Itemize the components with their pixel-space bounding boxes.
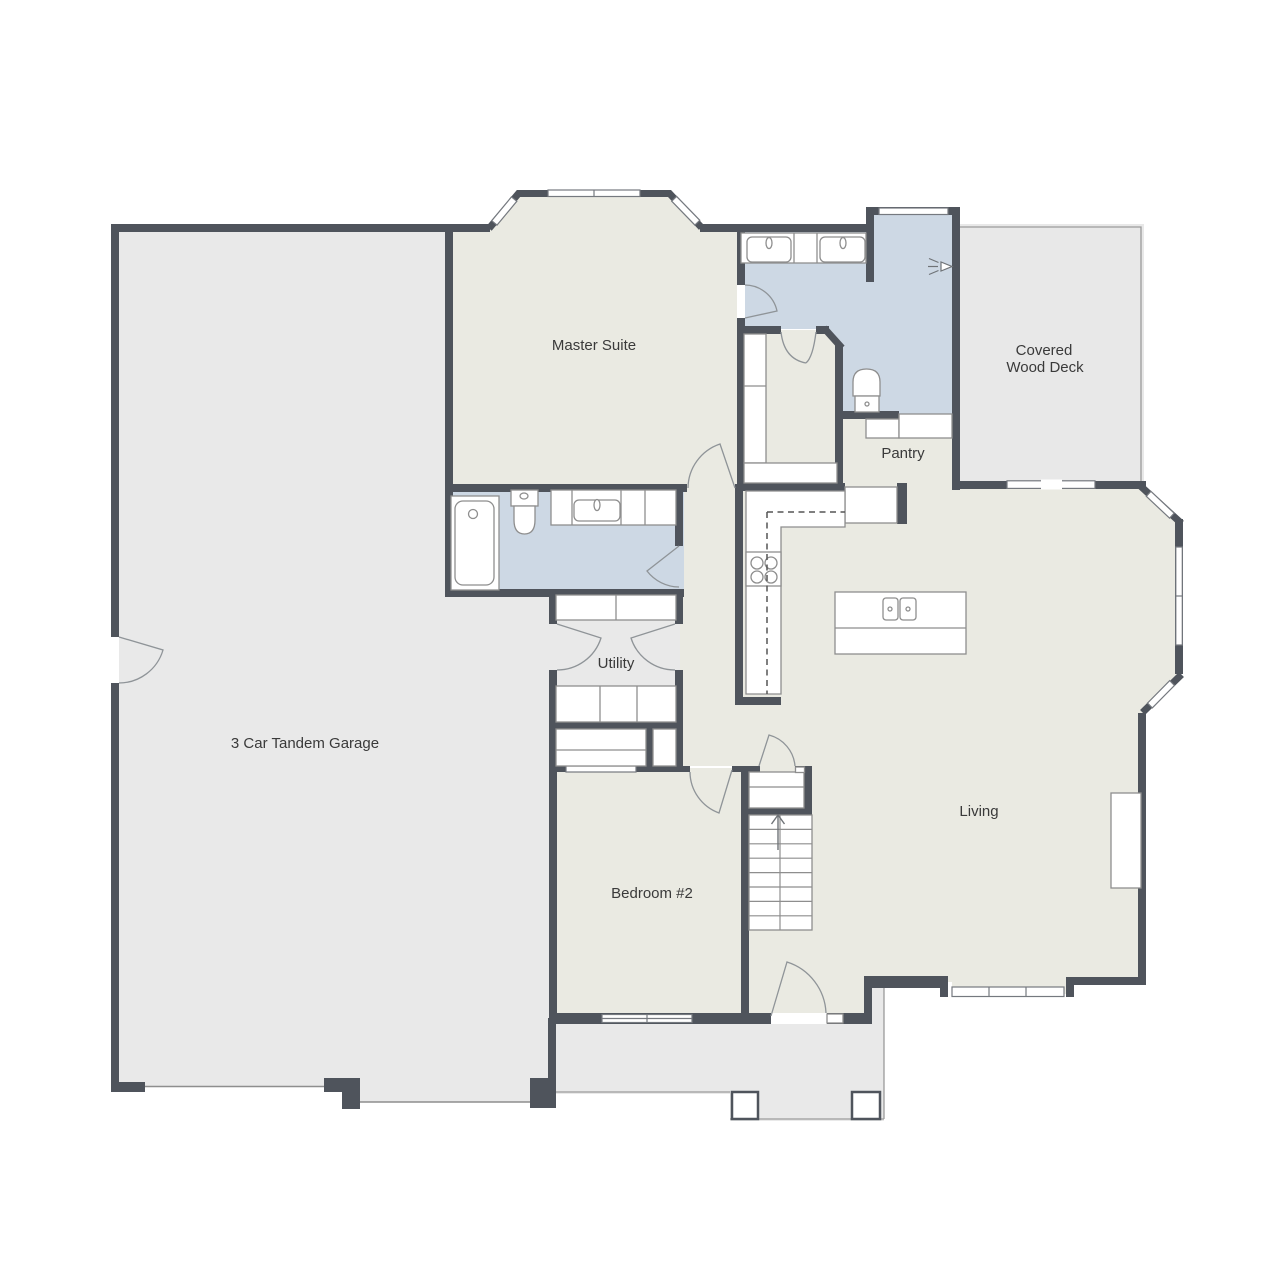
svg-text:Covered: Covered xyxy=(1016,342,1073,359)
svg-text:Master Suite: Master Suite xyxy=(552,337,636,354)
svg-text:Pantry: Pantry xyxy=(881,445,925,462)
svg-text:Living: Living xyxy=(959,803,998,820)
svg-text:Utility: Utility xyxy=(598,655,635,672)
svg-text:Wood Deck: Wood Deck xyxy=(1006,359,1084,376)
svg-text:3 Car Tandem Garage: 3 Car Tandem Garage xyxy=(231,735,379,752)
svg-text:Bedroom #2: Bedroom #2 xyxy=(611,885,693,902)
